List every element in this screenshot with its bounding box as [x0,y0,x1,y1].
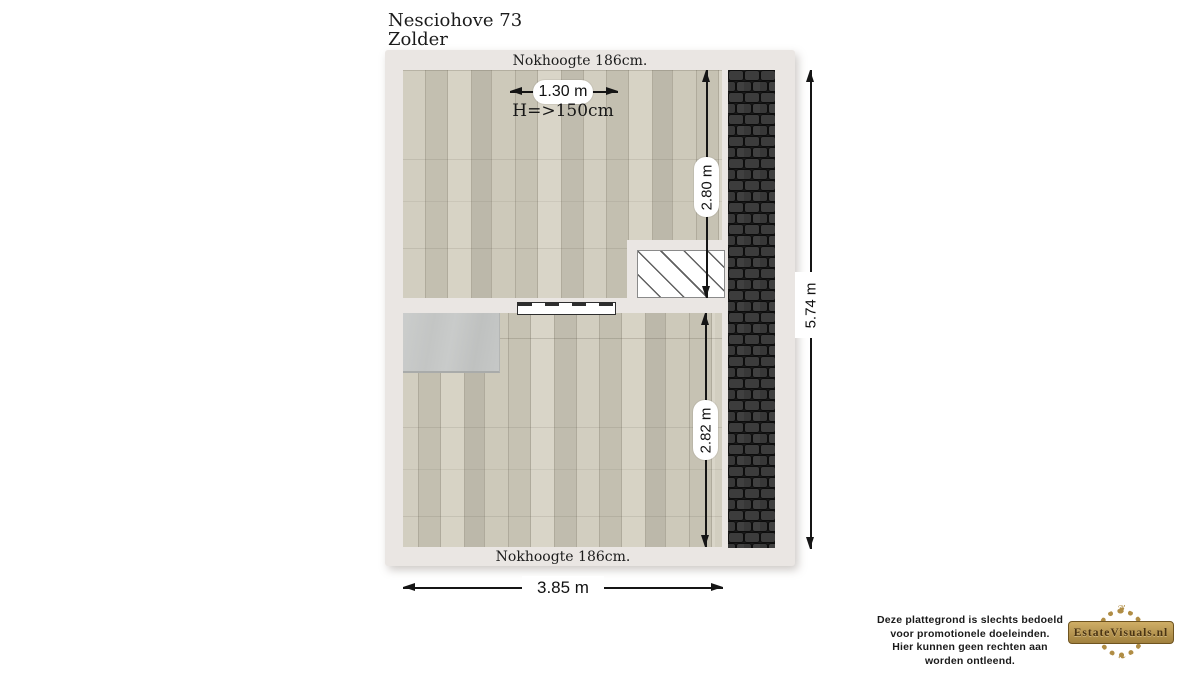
dim-label-lower-room: 2.82 m [693,400,718,460]
logo-ornament-icon: ❧ [1068,653,1176,663]
dim-label-total-width: 3.85 m [522,576,604,599]
height-note: H=>150cm [503,101,623,121]
arrow-up-icon [702,70,710,82]
logo-banner: EstateVisuals.nl [1068,621,1174,644]
arrow-right-icon [711,583,723,591]
arrow-left-icon [510,87,522,95]
floor-line: Zolder [388,30,522,49]
staircase [403,313,500,373]
address-line: Nesciohove 73 [388,11,522,30]
arrow-down-icon [806,537,814,549]
arrow-right-icon [606,87,618,95]
roof-tiles [728,70,775,548]
arrow-up-icon [701,313,709,325]
ridge-height-note-bottom: Nokhoogte 186cm. [403,549,723,565]
disclaimer-line: Deze plattegrond is slechts bedoeld [872,614,1068,628]
railing [517,302,616,315]
disclaimer-line: voor promotionele doeleinden. [872,628,1068,642]
dim-label-upper-room: 2.80 m [694,157,719,217]
page-title: Nesciohove 73 Zolder [388,11,522,49]
floorplan-page: Nesciohove 73 Zolder Nokhoogte 186cm. No… [0,0,1200,675]
disclaimer-text: Deze plattegrond is slechts bedoeld voor… [872,614,1068,668]
arrow-left-icon [403,583,415,591]
arrow-down-icon [702,286,710,298]
dim-label-total-depth: 5.74 m [795,272,826,338]
arrow-down-icon [701,535,709,547]
ridge-height-note-top: Nokhoogte 186cm. [395,53,765,69]
estatevisuals-logo: ❦ ❧ EstateVisuals.nl [1068,606,1176,662]
arrow-up-icon [806,70,814,82]
logo-ornament-icon: ❦ [1068,605,1176,615]
disclaimer-line: Hier kunnen geen rechten aan worden ontl… [872,641,1068,668]
stair-void-hatch [637,250,725,298]
